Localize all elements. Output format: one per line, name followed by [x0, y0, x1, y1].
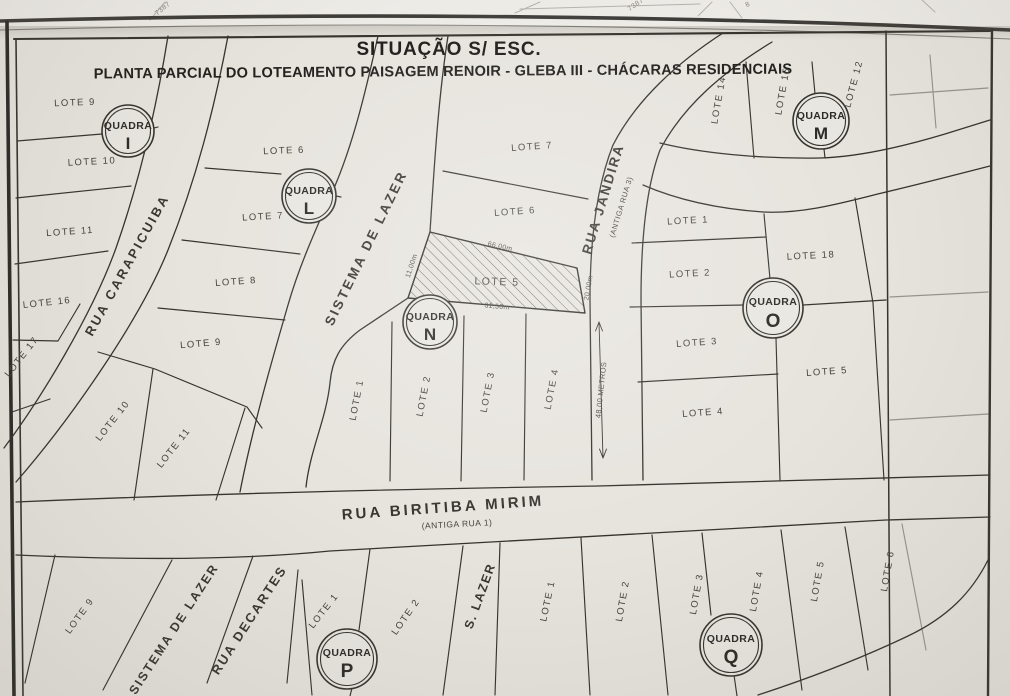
scanned-plat-sheet: 7387 7387 8 SITUAÇÃO S/ ESC. PLANTA PARC… [0, 0, 1010, 696]
page-title: SITUAÇÃO S/ ESC. [357, 39, 542, 61]
lot-label: LOTE 6 [263, 145, 305, 157]
plat-linework [0, 0, 1010, 696]
quadra-word-Q: QUADRA [707, 633, 755, 645]
quadra-word-I: QUADRA [104, 120, 152, 132]
lot-label: LOTE 2 [669, 267, 711, 280]
quadra-letter-M: M [814, 124, 828, 144]
sheet-frame [0, 0, 1010, 696]
quadra-word-L: QUADRA [285, 185, 333, 197]
quadra-letter-Q: Q [724, 647, 739, 669]
quadra-word-O: QUADRA [749, 296, 797, 308]
quadra-word-N: QUADRA [406, 311, 454, 323]
quadra-letter-P: P [341, 661, 354, 683]
quadra-letter-O: O [766, 311, 781, 333]
lot-label: LOTE 7 [242, 210, 284, 223]
quadra-word-P: QUADRA [323, 647, 371, 659]
quadra-letter-L: L [304, 199, 314, 219]
quadra-letter-N: N [424, 325, 436, 345]
lot-label: LOTE 1 [667, 214, 709, 227]
lot-label: LOTE 9 [54, 97, 96, 109]
quadra-word-M: QUADRA [797, 110, 845, 122]
quadra-letter-I: I [126, 134, 131, 154]
lot-label-lote5: LOTE 5 [474, 275, 520, 289]
